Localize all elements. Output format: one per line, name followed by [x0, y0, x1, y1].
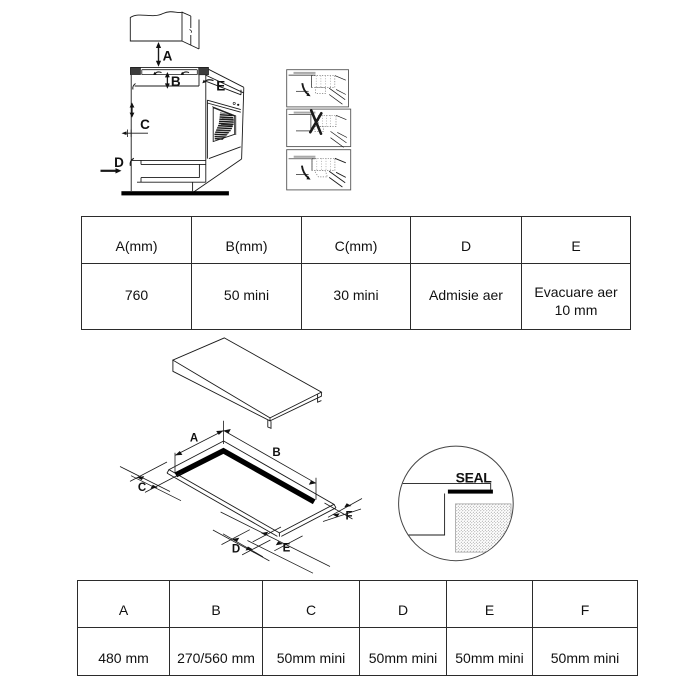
svg-text:F: F — [345, 511, 352, 523]
svg-text:C: C — [140, 117, 150, 132]
svg-text:D: D — [232, 544, 240, 556]
svg-text:B: B — [272, 447, 280, 459]
svg-text:E: E — [216, 79, 225, 94]
svg-text:C: C — [138, 482, 146, 494]
svg-text:A: A — [190, 433, 198, 445]
svg-text:A: A — [163, 49, 173, 64]
svg-text:SEAL: SEAL — [456, 469, 493, 485]
svg-text:D: D — [114, 155, 124, 170]
svg-text:E: E — [283, 543, 291, 555]
svg-text:B: B — [171, 74, 181, 89]
